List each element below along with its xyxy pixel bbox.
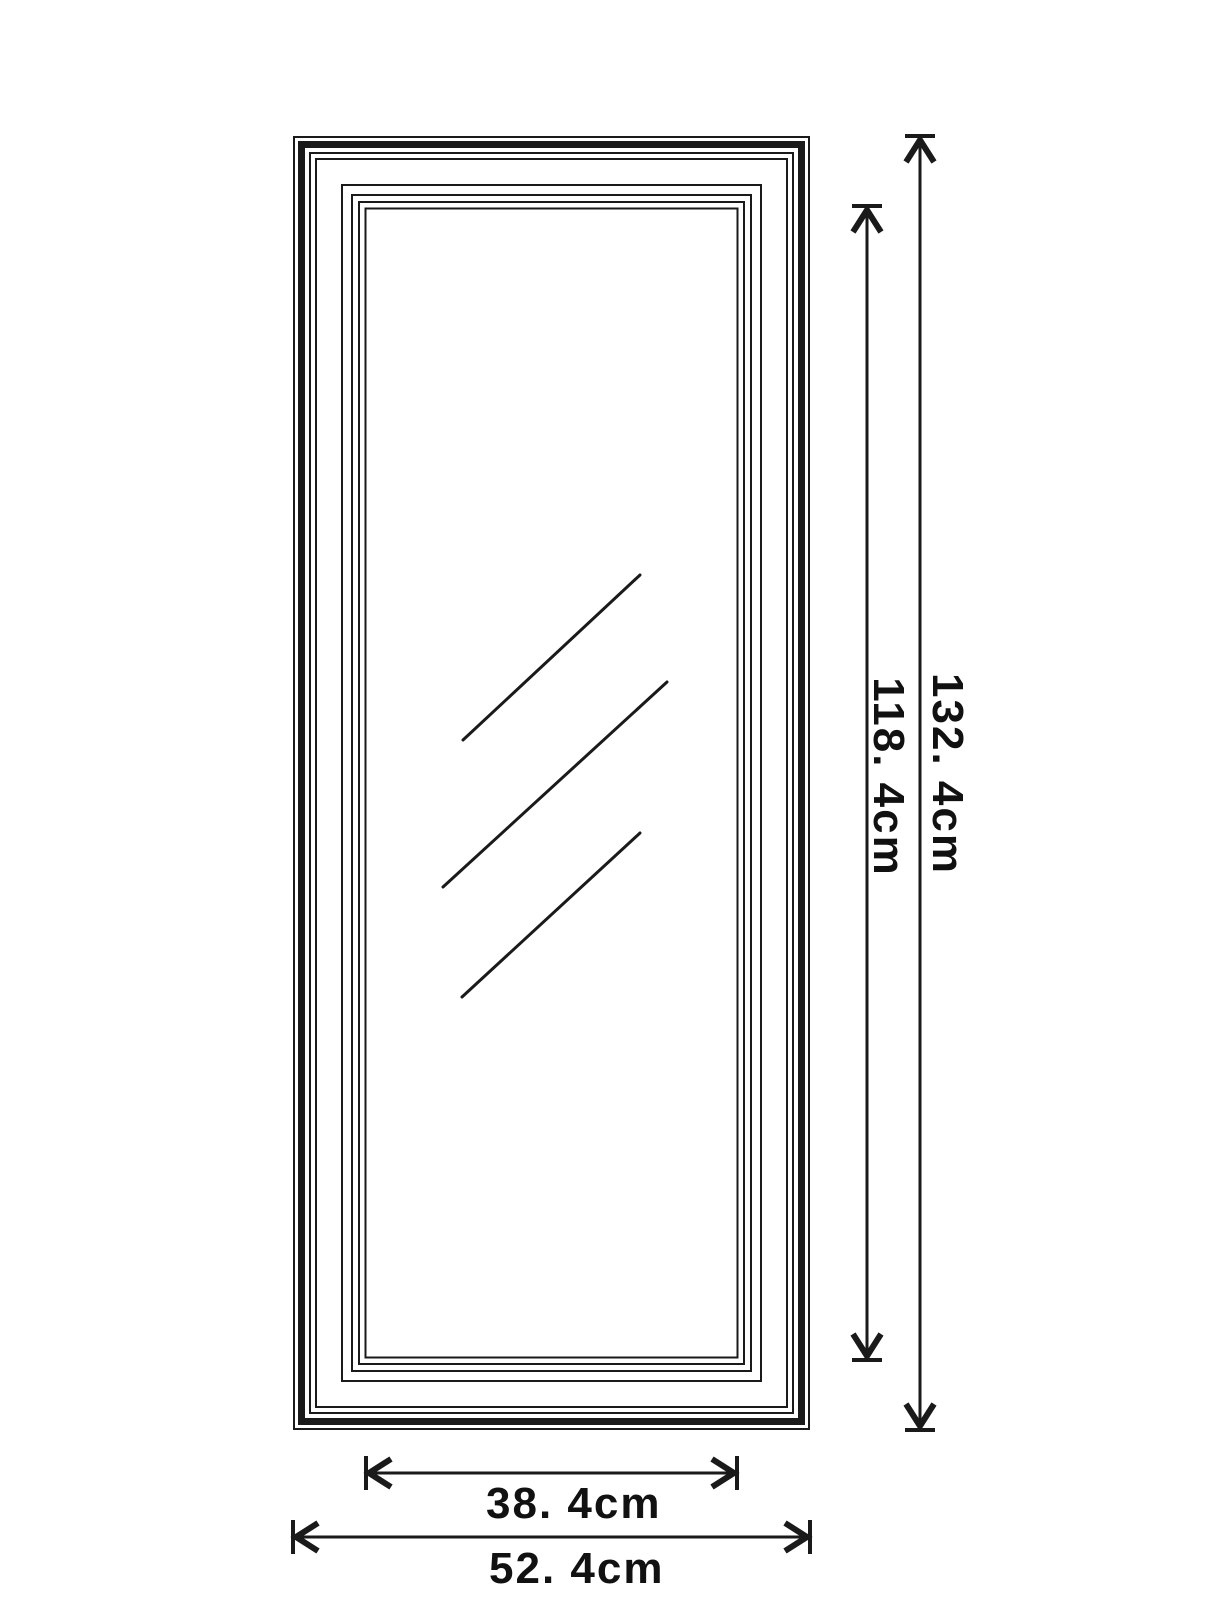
- frame-molding-band: [302, 145, 802, 1422]
- frame-molding-line-5: [342, 185, 761, 1381]
- mirror-frame-moldings: [294, 137, 809, 1429]
- frame-molding-line-7: [359, 202, 744, 1364]
- dim-label-outer-width: 52. 4cm: [489, 1547, 664, 1591]
- reflection-lines: [443, 575, 667, 997]
- frame-molding-line-6: [352, 195, 751, 1371]
- frame-molding-line-3: [310, 153, 793, 1413]
- dim-label-inner-height: 118. 4cm: [866, 677, 910, 877]
- frame-molding-line-4: [316, 159, 787, 1407]
- frame-molding-outer-edge: [294, 137, 809, 1429]
- reflection-line-top: [463, 575, 640, 740]
- drawing-canvas: [0, 0, 1214, 1619]
- mirror-dimension-drawing: 118. 4cm 132. 4cm 38. 4cm 52. 4cm: [0, 0, 1214, 1619]
- dim-label-inner-width: 38. 4cm: [486, 1482, 661, 1526]
- mirror-glass-edge: [366, 209, 738, 1358]
- reflection-line-middle: [443, 682, 667, 887]
- reflection-line-bottom: [462, 833, 640, 997]
- dim-label-outer-height: 132. 4cm: [925, 673, 969, 875]
